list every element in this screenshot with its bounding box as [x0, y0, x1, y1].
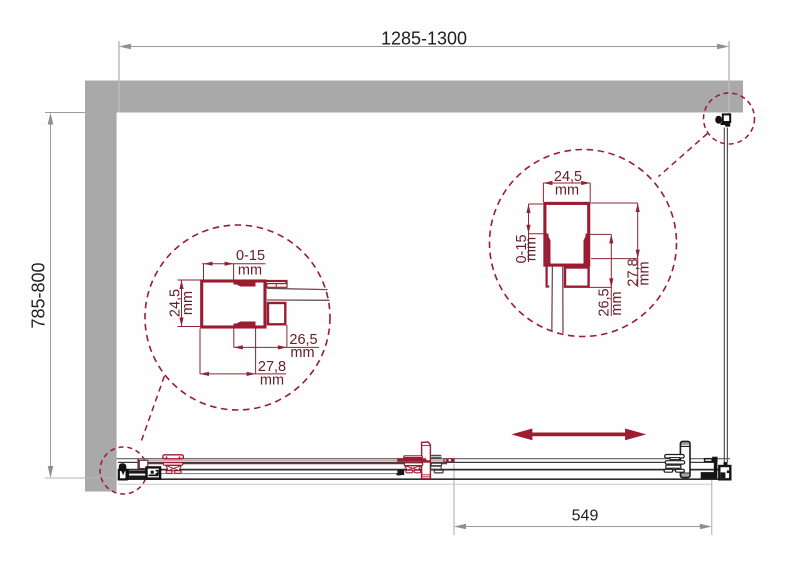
svg-text:mm: mm	[609, 291, 625, 315]
svg-text:mm: mm	[290, 345, 314, 361]
svg-text:785-800: 785-800	[29, 262, 49, 328]
svg-text:0-15: 0-15	[236, 248, 265, 264]
svg-text:mm: mm	[238, 263, 262, 279]
svg-text:mm: mm	[180, 291, 196, 315]
svg-text:mm: mm	[260, 372, 284, 388]
svg-text:1285-1300: 1285-1300	[381, 29, 467, 49]
svg-text:mm: mm	[555, 183, 579, 199]
svg-text:mm: mm	[637, 261, 653, 285]
svg-text:mm: mm	[524, 237, 540, 261]
svg-text:549: 549	[572, 508, 599, 525]
